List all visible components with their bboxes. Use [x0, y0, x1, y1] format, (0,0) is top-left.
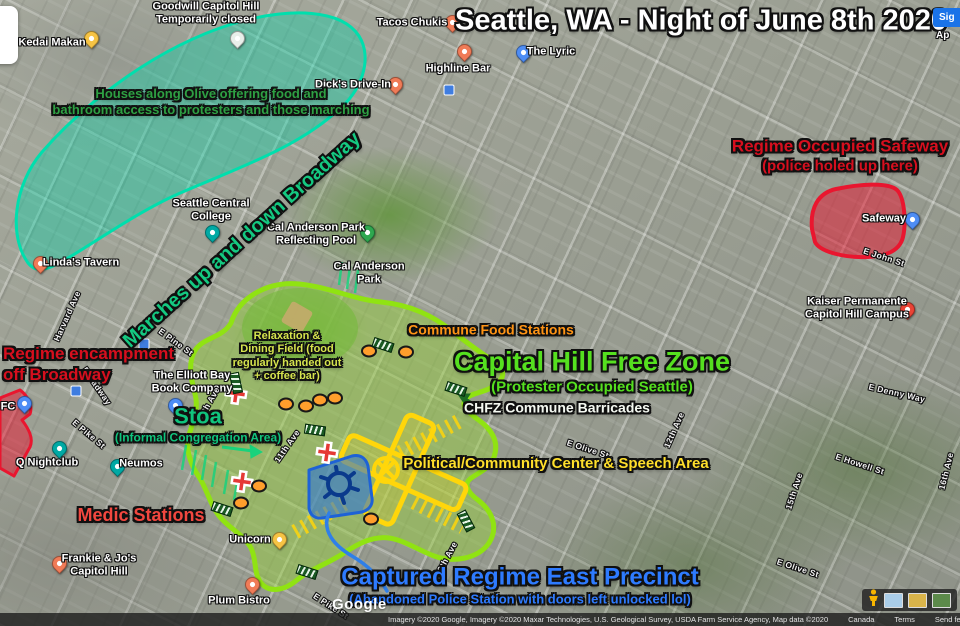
imagery-thumbnail[interactable]	[932, 593, 951, 608]
search-panel[interactable]	[0, 6, 18, 64]
imagery-thumbnail[interactable]	[908, 593, 927, 608]
imagery-thumbnail[interactable]	[884, 593, 903, 608]
footer-feedback-link[interactable]: Send feedback	[935, 615, 960, 624]
apps-label[interactable]: Ap	[936, 30, 949, 41]
ui-chrome: Sig Ap Google Imagery ©2020 Google, Imag…	[0, 0, 960, 626]
sign-in-button[interactable]: Sig	[933, 8, 960, 27]
pegman-icon[interactable]	[868, 589, 879, 612]
google-logo[interactable]: Google	[332, 596, 387, 613]
attribution-bar: Imagery ©2020 Google, Imagery ©2020 Maxa…	[0, 613, 960, 626]
imagery-control-bar	[862, 589, 957, 611]
footer-terms-link[interactable]: Terms	[894, 615, 914, 624]
map-canvas[interactable]: Kedai MakanGoodwill Capitol HillTemporar…	[0, 0, 960, 626]
footer-region: Canada	[848, 615, 874, 624]
attribution-text: Imagery ©2020 Google, Imagery ©2020 Maxa…	[388, 615, 828, 624]
